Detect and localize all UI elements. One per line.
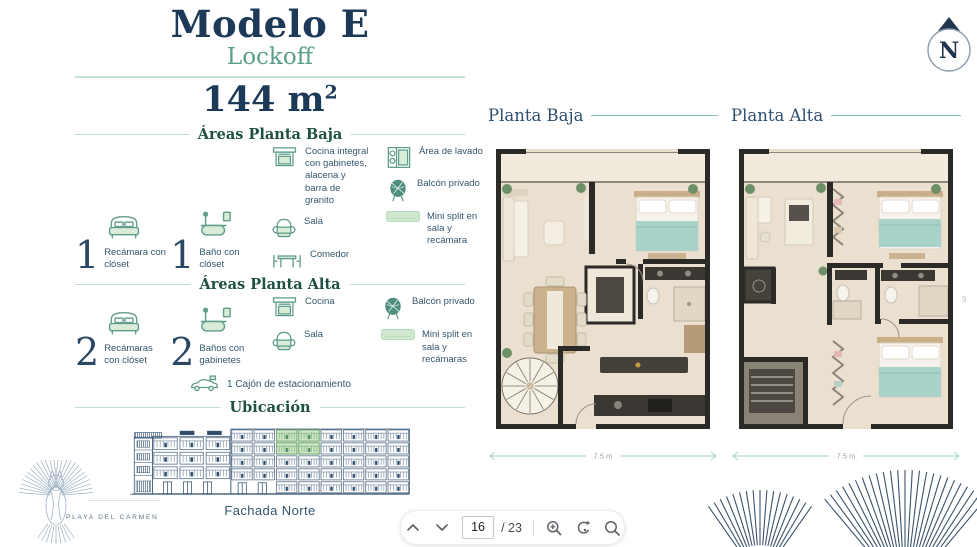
pdf-pager-toolbar: 16 / 23 (400, 510, 625, 545)
feature-sala: Sala (271, 216, 374, 240)
compass-north-icon: N (922, 14, 976, 74)
svg-text:N: N (939, 38, 959, 64)
washer-icon (386, 146, 412, 169)
kitchen-icon (271, 146, 298, 170)
page-total-label: / 23 (501, 521, 522, 535)
zoom-in-icon (546, 520, 562, 536)
section-header-planta-alta: Áreas Planta Alta (75, 276, 465, 293)
section-header-ubicacion: Ubicación (75, 399, 465, 416)
palm-fan-decoration (660, 455, 977, 547)
search-button[interactable] (603, 519, 621, 537)
feature-sala-alta: Sala (271, 329, 369, 353)
plan-alta-block: Planta Alta (731, 106, 961, 463)
page-down-button[interactable] (433, 519, 451, 537)
feature-mini-split: Mini split en sala y recámara (386, 211, 491, 248)
brand-divider (88, 500, 160, 501)
floorplan-planta-alta (731, 141, 961, 437)
feature-balcon-privado-alta: Balcón privado (381, 296, 486, 320)
parking-row: 1 Cajón de estacionamiento (75, 375, 465, 393)
stat-banos: 1 Baño con clóset (170, 156, 265, 271)
divider (75, 76, 465, 78)
bed-icon (104, 214, 144, 241)
chevron-down-icon (435, 523, 449, 532)
brand-name: PLAYA DEL CARMEN (66, 514, 159, 521)
palm-icon (381, 296, 405, 320)
plan-alta-side-dimension: 9 (962, 295, 966, 304)
minisplit-icon (381, 329, 415, 340)
chevron-up-icon (406, 523, 420, 532)
stat-banos-alta: 2 Baños con gabinetes (170, 306, 265, 367)
bathtub-icon (199, 210, 233, 241)
bird-logo (6, 460, 106, 547)
page-subtitle: Lockoff (75, 44, 465, 70)
section-header-planta-baja: Áreas Planta Baja (75, 126, 465, 143)
palm-icon (386, 178, 410, 202)
legend-planta-baja: 1 Recámara con clóset 1 (75, 146, 465, 271)
rotate-icon (575, 520, 591, 536)
feature-mini-split-alta: Mini split en sala y recámaras (381, 329, 486, 366)
dining-table-icon (271, 249, 303, 270)
stat-recamaras-alta: 2 Recámaras con clóset (75, 306, 170, 367)
plan-baja-block: Planta Baja (488, 106, 718, 463)
kitchen-icon (271, 296, 298, 320)
armchair-icon (271, 216, 297, 240)
bed-icon (104, 310, 144, 337)
minisplit-icon (386, 211, 420, 222)
legend-planta-alta: 2 Recámaras con clóset 2 (75, 296, 465, 367)
rotate-button[interactable] (574, 519, 592, 537)
feature-balcon-privado: Balcón privado (386, 178, 491, 202)
zoom-in-button[interactable] (545, 519, 563, 537)
plan-baja-header: Planta Baja (488, 106, 718, 125)
page-up-button[interactable] (404, 519, 422, 537)
svg-text:7.5 m: 7.5 m (594, 452, 613, 461)
floorplan-planta-baja (488, 141, 718, 437)
car-icon (189, 375, 219, 393)
page-number-input[interactable]: 16 (462, 516, 494, 539)
page-title: Modelo E (75, 4, 465, 45)
feature-comedor: Comedor (271, 249, 374, 270)
search-icon (604, 520, 620, 536)
feature-cocina: Cocina (271, 296, 369, 320)
building-facade-drawing (117, 419, 423, 501)
feature-area-lavado: Área de lavado (386, 146, 491, 169)
area-value: 144 m2 (75, 79, 465, 120)
pager-divider (533, 520, 534, 536)
plan-alta-header: Planta Alta (731, 106, 961, 125)
stat-recamaras: 1 Recámara con clóset (75, 156, 170, 271)
feature-cocina-integral: Cocina integral con gabinetes, alacena y… (271, 146, 374, 208)
armchair-icon (271, 329, 297, 353)
info-panel: Modelo E Lockoff 144 m2 Áreas Planta Baj… (75, 4, 465, 518)
bathtub-icon (199, 306, 233, 337)
